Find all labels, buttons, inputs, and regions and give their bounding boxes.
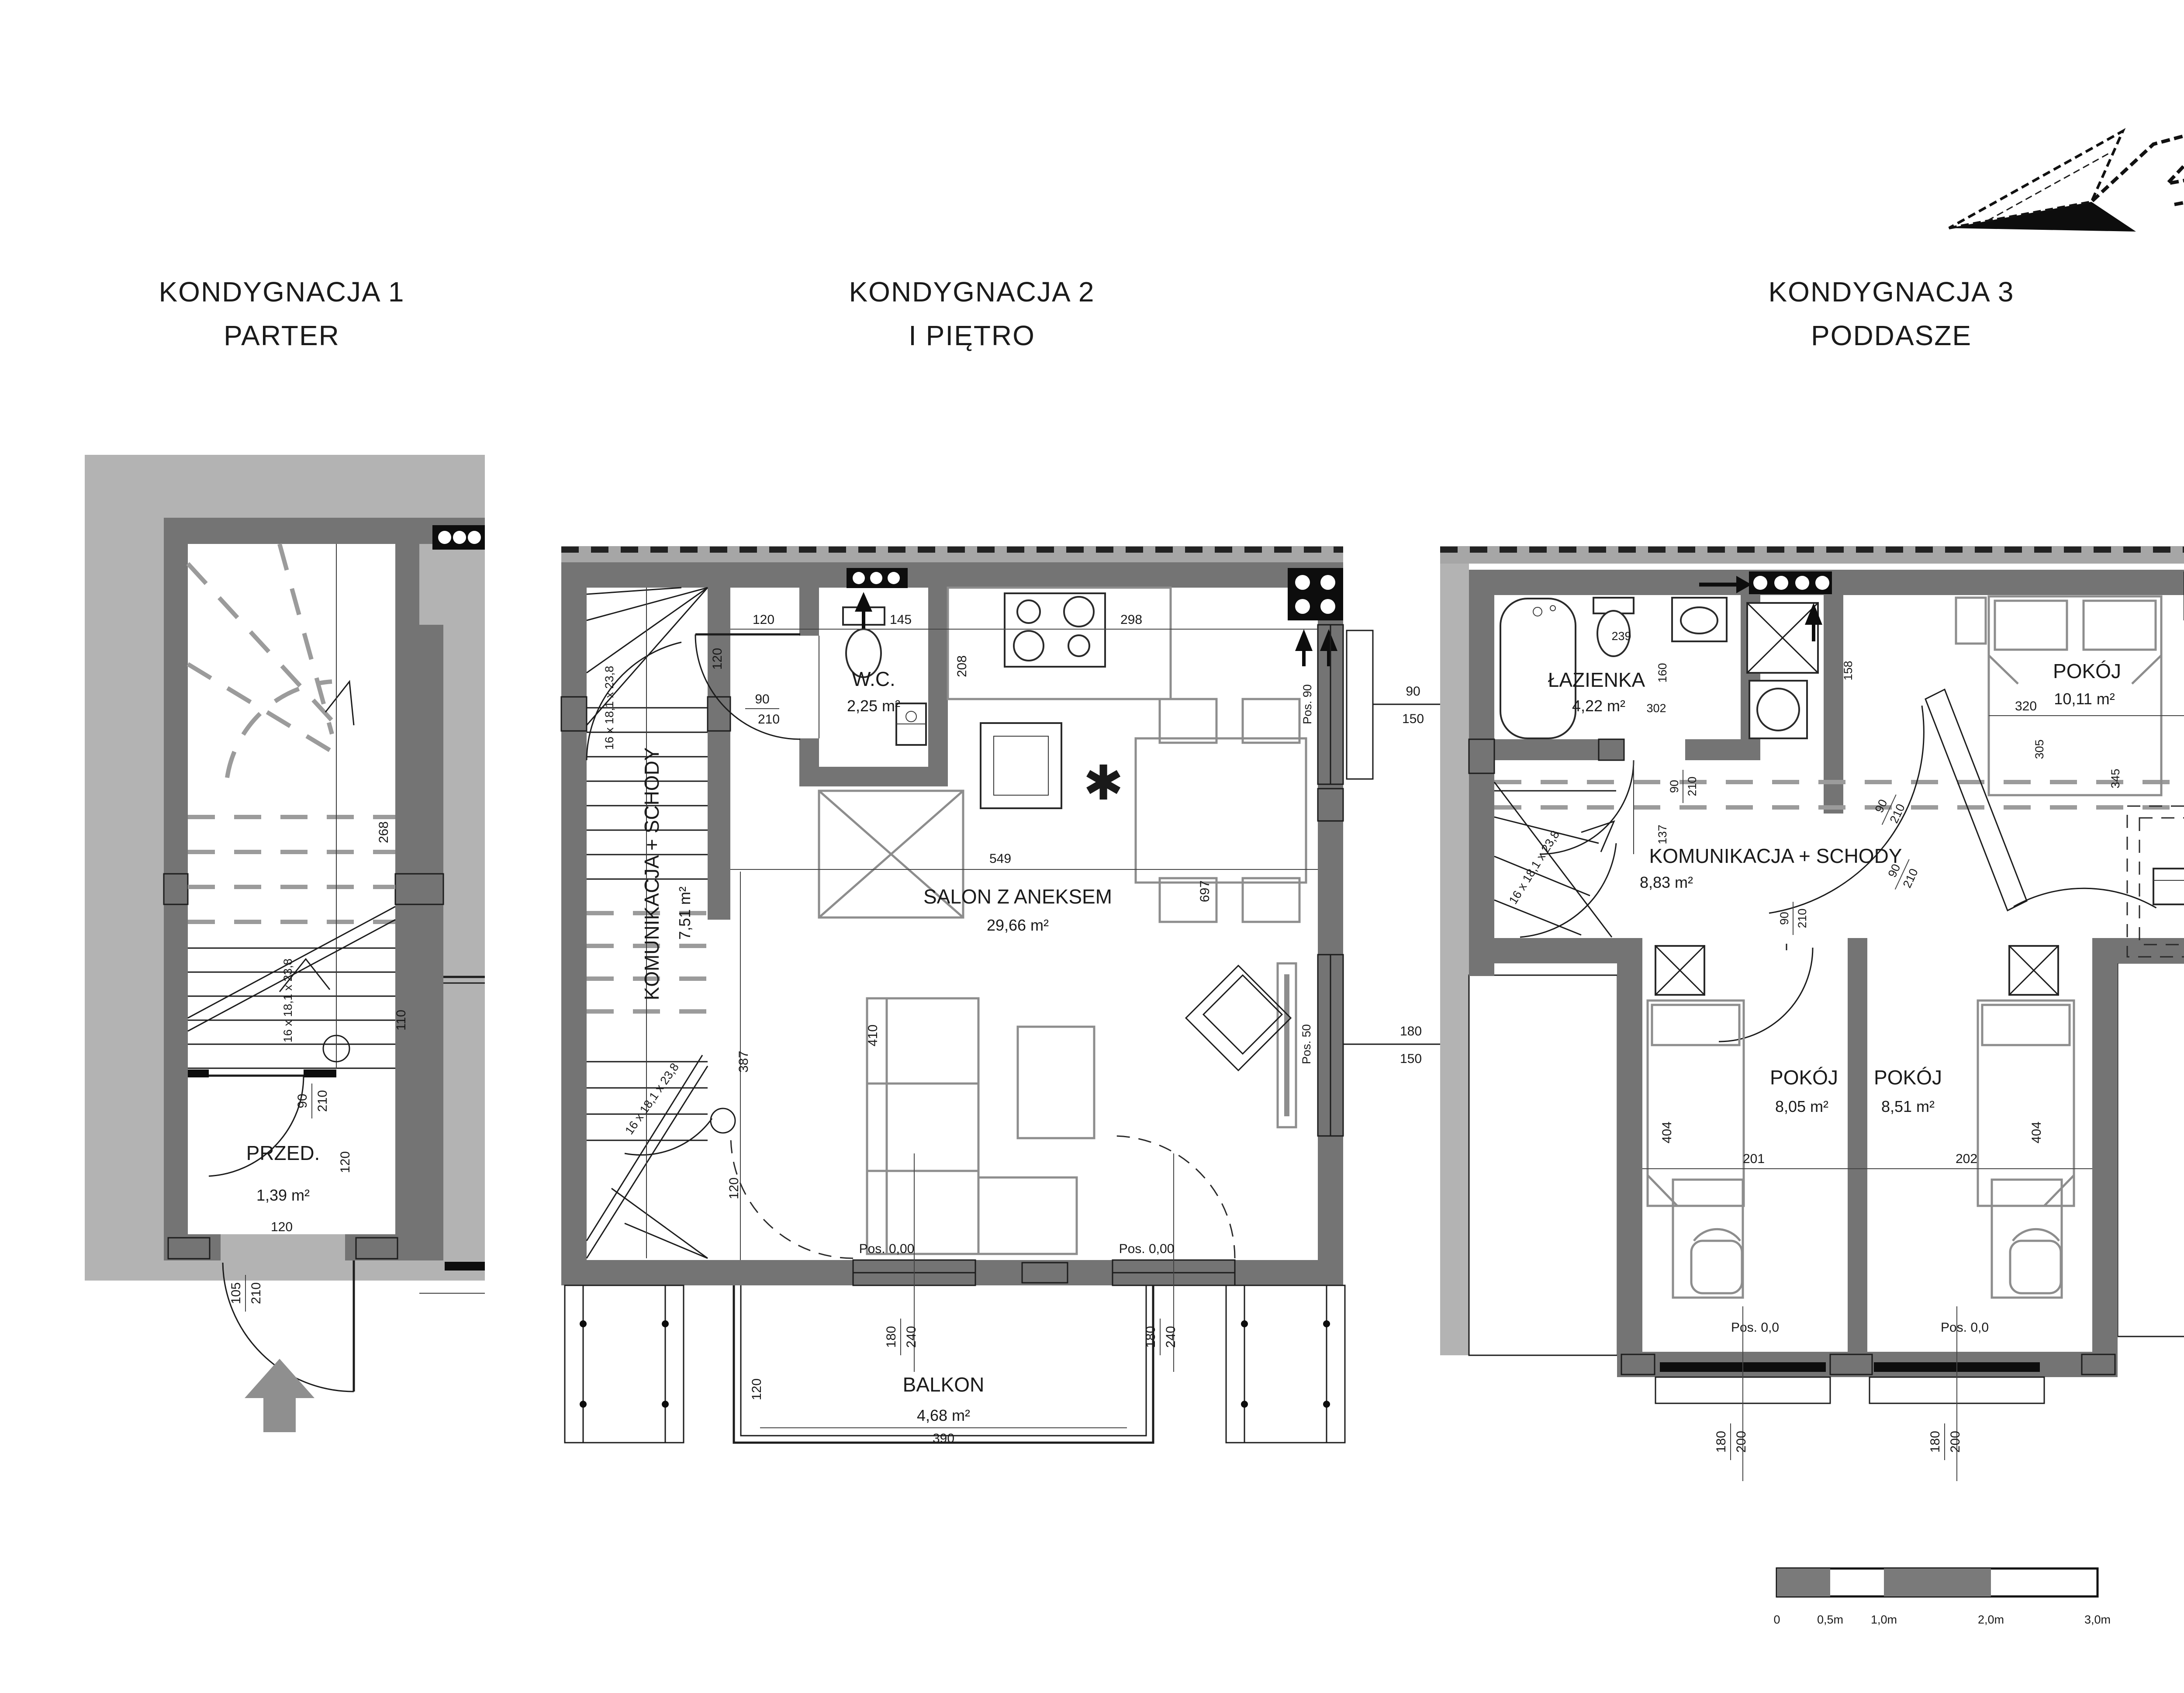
svg-text:150: 150 [1402,712,1424,726]
svg-text:240: 240 [904,1326,919,1348]
dim-239: 239 [1611,630,1631,643]
scale-20: 2,0m [1978,1613,2004,1626]
svg-text:90: 90 [1668,780,1681,793]
svg-text:210: 210 [1796,908,1809,928]
scale-05: 0,5m [1817,1613,1843,1626]
svg-text:210: 210 [249,1282,263,1304]
dim-120-v: 120 [338,1151,352,1173]
dim-208: 208 [955,655,969,677]
room-label-salon: SALON Z ANEKSEM [923,885,1112,908]
dim-120-h: 120 [271,1220,293,1234]
dim-158: 158 [1842,661,1855,680]
dim-120-wc: 120 [710,648,725,670]
dim-120-balkon: 120 [750,1378,764,1400]
svg-text:90: 90 [1406,684,1420,699]
svg-text:Pos. 90: Pos. 90 [1301,684,1314,724]
room-label-przed: PRZED. [246,1142,320,1164]
svg-text:210: 210 [1686,776,1699,796]
floorplan-sheet: KONDYGNACJA 1 PARTER KONDYGNACJA 2 I PIĘ… [0,0,2184,1693]
meter-box-icon [432,525,485,550]
room-area-wc: 2,25 m² [847,697,900,715]
room-label-pokoj2: POKÓJ [1770,1066,1838,1089]
dim-120-door: 120 [727,1177,741,1199]
room-label-balkon: BALKON [903,1373,985,1396]
svg-text:90: 90 [295,1094,310,1108]
room-area-pokoj3: 8,51 m² [1881,1098,1935,1115]
subtitle-floor2: I PIĘTRO [909,320,1035,351]
dim-120-top: 120 [753,613,774,627]
svg-text:240: 240 [1164,1326,1178,1348]
level-pos00-b: Pos. 0,0 [1941,1320,1989,1335]
room-area-pokoj2: 8,05 m² [1775,1098,1828,1115]
dim-268: 268 [377,821,391,843]
sink-icon: ✱ [1083,756,1123,810]
dim-404-b: 404 [2029,1122,2044,1143]
svg-text:Pos. 50: Pos. 50 [1300,1024,1313,1064]
svg-text:180: 180 [1714,1431,1728,1453]
dim-387: 387 [736,1051,751,1073]
dim-410: 410 [866,1025,880,1046]
dim-145: 145 [890,613,912,627]
svg-text:180: 180 [884,1326,898,1348]
dim-697: 697 [1198,880,1212,902]
title-floor2: KONDYGNACJA 2 [849,276,1095,308]
svg-text:90: 90 [1778,912,1791,925]
subtitle-floor1: PARTER [224,320,340,351]
dim-320: 320 [2015,699,2037,713]
svg-text:210: 210 [758,712,780,727]
room-area-balkon: 4,68 m² [917,1406,970,1424]
meter-box-icon [847,568,908,588]
room-area-komunikacja-f3: 8,83 m² [1640,873,1693,891]
room-area-przed: 1,39 m² [256,1186,310,1204]
scale-30: 3,0m [2084,1613,2111,1626]
dim-302: 302 [1646,702,1666,715]
room-label-komunikacja-f2: KOMUNIKACJA + SCHODY [640,748,663,1001]
dim-390: 390 [933,1431,954,1446]
scale-10: 1,0m [1871,1613,1897,1626]
room-area-pokoj1: 10,11 m² [2054,690,2115,708]
svg-text:200: 200 [1734,1431,1749,1453]
svg-text:200: 200 [1948,1431,1963,1453]
scale-0: 0 [1773,1613,1780,1626]
room-area-komunikacja-f2: 7,51 m² [676,886,694,940]
dim-404-a: 404 [1660,1122,1674,1143]
level-pos000-b: Pos. 0,00 [1119,1242,1175,1256]
svg-text:180: 180 [1928,1431,1942,1453]
room-area-salon: 29,66 m² [987,916,1049,934]
svg-text:105: 105 [229,1282,243,1304]
title-floor3: KONDYGNACJA 3 [1768,276,2014,308]
dim-345: 345 [2109,769,2122,788]
svg-text:210: 210 [315,1090,330,1112]
dim-110: 110 [394,1010,408,1031]
dim-549: 549 [989,852,1011,866]
level-pos00-a: Pos. 0,0 [1731,1320,1779,1335]
room-label-pokoj1: POKÓJ [2053,660,2121,682]
svg-text:90: 90 [755,692,769,706]
dim-137: 137 [1656,824,1669,844]
room-label-wc: W.C. [852,668,895,690]
room-label-pokoj3: POKÓJ [1874,1066,1942,1089]
stair-formula-f2a: 16 x 18,1 x 23,8 [603,666,616,750]
room-label-lazienka: ŁAZIENKA [1548,668,1645,691]
dim-202: 202 [1956,1152,1977,1166]
dim-298: 298 [1120,613,1142,627]
stair-formula-f1: 16 x 18,1 x 23,8 [281,959,294,1042]
subtitle-floor3: PODDASZE [1811,320,1972,351]
title-floor1: KONDYGNACJA 1 [159,276,404,308]
svg-text:180: 180 [1400,1024,1422,1039]
dim-160: 160 [1656,663,1669,682]
room-label-komunikacja-f3: KOMUNIKACJA + SCHODY [1649,845,1902,867]
svg-text:150: 150 [1400,1052,1422,1066]
dim-305: 305 [2033,739,2046,759]
level-pos000-a: Pos. 0,00 [859,1242,915,1256]
dim-201: 201 [1743,1152,1765,1166]
room-area-lazienka: 4,22 m² [1572,697,1625,715]
